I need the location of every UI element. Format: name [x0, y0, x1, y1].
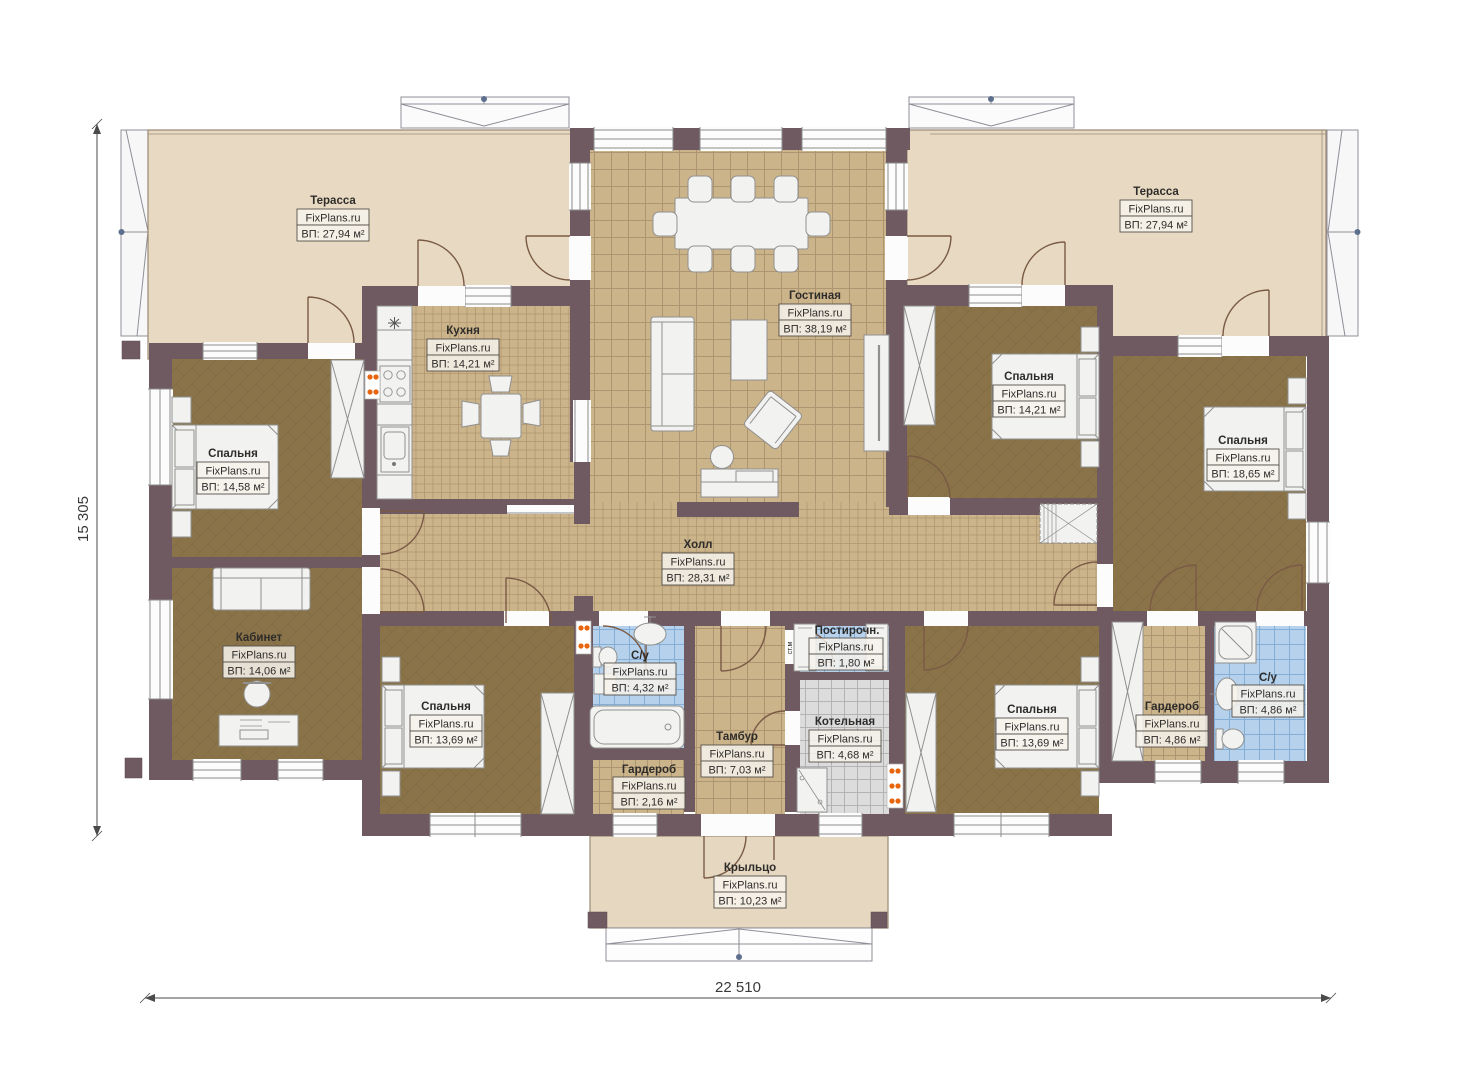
svg-text:ВП: 27,94 м²: ВП: 27,94 м² [301, 229, 365, 241]
svg-text:ВП: 13,69 м²: ВП: 13,69 м² [1000, 738, 1064, 750]
svg-text:22 510: 22 510 [715, 979, 761, 996]
svg-text:FixPlans.ru: FixPlans.ru [1144, 719, 1199, 731]
svg-text:FixPlans.ru: FixPlans.ru [418, 719, 473, 731]
svg-text:FixPlans.ru: FixPlans.ru [1240, 689, 1295, 701]
svg-text:FixPlans.ru: FixPlans.ru [621, 781, 676, 793]
svg-text:Спальня: Спальня [421, 701, 471, 713]
svg-text:FixPlans.ru: FixPlans.ru [1001, 389, 1056, 401]
svg-text:Постирочн.: Постирочн. [815, 625, 880, 637]
svg-text:FixPlans.ru: FixPlans.ru [787, 308, 842, 320]
svg-text:С/у: С/у [1259, 672, 1278, 684]
svg-text:Гардероб: Гардероб [1145, 701, 1199, 713]
svg-text:Котельная: Котельная [815, 716, 875, 728]
svg-text:ВП: 7,03 м²: ВП: 7,03 м² [708, 765, 765, 777]
svg-text:FixPlans.ru: FixPlans.ru [1004, 722, 1059, 734]
svg-text:ВП: 4,68 м²: ВП: 4,68 м² [816, 750, 873, 762]
svg-text:Терасса: Терасса [1133, 186, 1179, 198]
svg-text:Гардероб: Гардероб [622, 764, 676, 776]
svg-text:FixPlans.ru: FixPlans.ru [435, 343, 490, 355]
svg-text:ВП: 2,16 м²: ВП: 2,16 м² [620, 797, 677, 809]
svg-text:FixPlans.ru: FixPlans.ru [1128, 204, 1183, 216]
svg-text:С/у: С/у [631, 650, 650, 662]
svg-text:ВП: 14,21 м²: ВП: 14,21 м² [997, 405, 1061, 417]
svg-text:Терасса: Терасса [310, 195, 356, 207]
svg-text:FixPlans.ru: FixPlans.ru [1215, 453, 1270, 465]
svg-text:ВП: 18,65 м²: ВП: 18,65 м² [1211, 469, 1275, 481]
svg-text:FixPlans.ru: FixPlans.ru [612, 667, 667, 679]
svg-text:FixPlans.ru: FixPlans.ru [305, 213, 360, 225]
svg-text:15 305: 15 305 [75, 496, 92, 542]
svg-text:ВП: 13,69 м²: ВП: 13,69 м² [414, 735, 478, 747]
svg-text:Спальня: Спальня [208, 448, 258, 460]
svg-text:Гостиная: Гостиная [789, 290, 841, 302]
svg-text:Спальня: Спальня [1007, 704, 1057, 716]
svg-text:ст.м: ст.м [787, 641, 794, 654]
svg-text:ВП: 10,23 м²: ВП: 10,23 м² [718, 896, 782, 908]
svg-text:ВП: 4,86 м²: ВП: 4,86 м² [1143, 735, 1200, 747]
svg-text:FixPlans.ru: FixPlans.ru [817, 734, 872, 746]
svg-text:FixPlans.ru: FixPlans.ru [709, 749, 764, 761]
svg-text:Тамбур: Тамбур [716, 731, 758, 743]
svg-text:ВП: 28,31 м²: ВП: 28,31 м² [666, 573, 730, 585]
svg-text:ВП: 14,58 м²: ВП: 14,58 м² [201, 482, 265, 494]
svg-text:FixPlans.ru: FixPlans.ru [205, 466, 260, 478]
svg-text:Крыльцо: Крыльцо [724, 862, 776, 874]
svg-text:ВП: 27,94 м²: ВП: 27,94 м² [1124, 220, 1188, 232]
svg-text:ВП: 4,86 м²: ВП: 4,86 м² [1239, 705, 1296, 717]
svg-text:FixPlans.ru: FixPlans.ru [231, 650, 286, 662]
svg-text:ВП: 1,80 м²: ВП: 1,80 м² [817, 658, 874, 670]
svg-text:Спальня: Спальня [1004, 371, 1054, 383]
svg-text:FixPlans.ru: FixPlans.ru [670, 557, 725, 569]
svg-text:Спальня: Спальня [1218, 435, 1268, 447]
svg-text:Кухня: Кухня [446, 325, 480, 337]
svg-text:ВП: 4,32 м²: ВП: 4,32 м² [611, 683, 668, 695]
svg-text:Кабинет: Кабинет [236, 632, 283, 644]
svg-text:ВП: 14,06 м²: ВП: 14,06 м² [227, 666, 291, 678]
svg-text:ВП: 14,21 м²: ВП: 14,21 м² [431, 359, 495, 371]
svg-text:ВП: 38,19 м²: ВП: 38,19 м² [783, 324, 847, 336]
svg-text:FixPlans.ru: FixPlans.ru [722, 880, 777, 892]
svg-text:FixPlans.ru: FixPlans.ru [818, 642, 873, 654]
svg-text:Холл: Холл [684, 539, 713, 551]
